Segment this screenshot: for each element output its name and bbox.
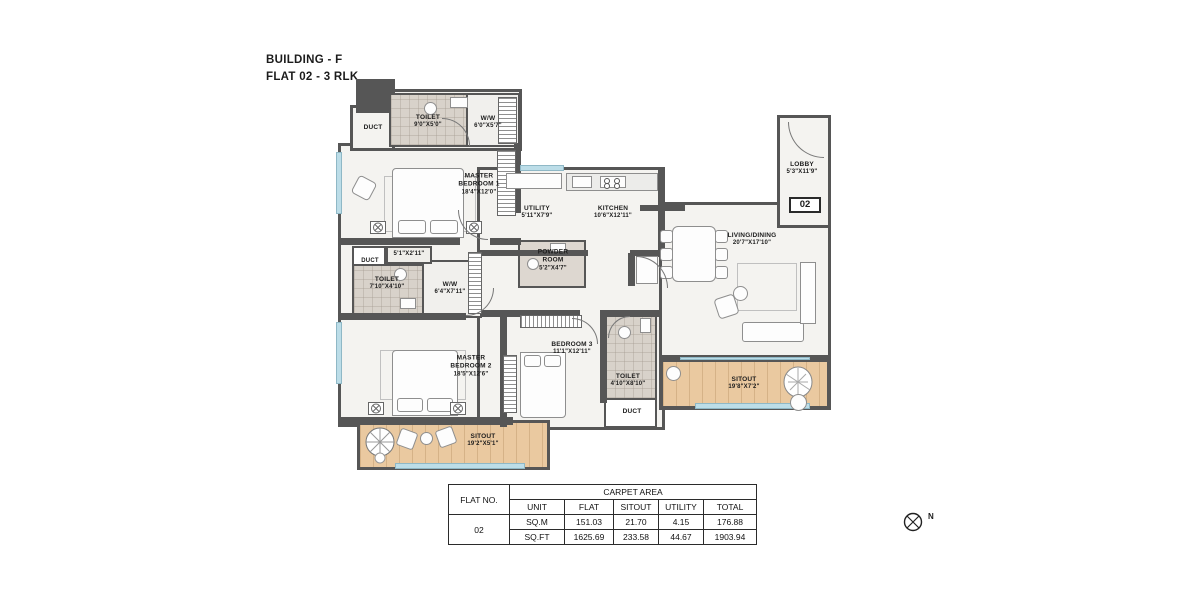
fan-icon xyxy=(368,402,384,415)
label-ww-1: W/W 6'0"X5'7" xyxy=(474,115,502,131)
dining-chair xyxy=(660,230,673,243)
wall-corridor-bed3-b xyxy=(600,310,662,317)
flat-no-value: 02 xyxy=(449,515,510,545)
sofa-living xyxy=(742,322,804,342)
dining-chair xyxy=(715,248,728,261)
tv-unit-living xyxy=(800,262,816,324)
cell-sitout-sqm: 21.70 xyxy=(614,515,659,530)
fan-icon xyxy=(450,402,466,415)
label-sitout-left: SITOUT 19'2"X5'1" xyxy=(467,433,498,449)
wall-master2-sitout xyxy=(338,417,513,425)
dining-chair xyxy=(660,248,673,261)
col-header-flat: FLAT xyxy=(565,500,614,515)
basin-toilet3 xyxy=(640,318,651,333)
compass: N xyxy=(902,510,942,536)
side-table-living xyxy=(733,286,748,301)
wall-master2-top xyxy=(338,313,466,320)
plan-title: BUILDING - F FLAT 02 - 3 RLK xyxy=(266,52,358,85)
cell-total-sqft: 1903.94 xyxy=(704,530,757,545)
cell-total-sqm: 176.88 xyxy=(704,515,757,530)
label-ww-2: W/W 6'4"X7'11" xyxy=(435,281,466,297)
wall-master1-bottom xyxy=(338,238,460,245)
compass-north-label: N xyxy=(928,512,934,521)
label-bedroom-3: BEDROOM 3 11'1"X12'11" xyxy=(551,341,592,357)
rug-living xyxy=(737,263,797,311)
cell-utility-sqft: 44.67 xyxy=(659,530,704,545)
pillow-bedroom3-a xyxy=(524,355,541,367)
window-sitout-left-rail xyxy=(395,463,525,469)
wall-bed3-toilet3 xyxy=(600,313,607,403)
col-header-utility: UTILITY xyxy=(659,500,704,515)
plan-title-line1: BUILDING - F xyxy=(266,52,358,69)
col-header-sitout: SITOUT xyxy=(614,500,659,515)
stove-burner xyxy=(614,183,620,189)
pillow-master1-a xyxy=(398,220,426,234)
wall-kitchen-right xyxy=(658,167,665,257)
label-duct-2: DUCT xyxy=(361,258,378,266)
dining-table xyxy=(672,226,716,282)
label-master-bedroom-1: MASTER BEDROOM 1 18'4"X12'0" xyxy=(447,173,511,198)
label-utility: UTILITY 5'11"X7'9" xyxy=(522,205,553,221)
wall-master1-bottom2 xyxy=(490,238,521,245)
col-header-unit: UNIT xyxy=(510,500,565,515)
basin-toilet2 xyxy=(400,298,416,309)
pillow-master1-b xyxy=(430,220,458,234)
dining-chair xyxy=(715,230,728,243)
kitchen-sink xyxy=(572,176,592,188)
wardrobe-hatch-bedroom3-left xyxy=(503,355,517,413)
wall-living-entry xyxy=(640,205,685,211)
spiral-stair-icon xyxy=(364,426,398,464)
label-duct-3: DUCT xyxy=(623,408,642,416)
label-lobby: LOBBY 5'3"X11'9" xyxy=(787,161,818,177)
carpet-area-table: FLAT NO. CARPET AREA UNIT FLAT SITOUT UT… xyxy=(448,484,757,545)
fan-icon xyxy=(370,221,386,234)
label-powder-room: POWDER ROOM 5'2"X4'7" xyxy=(532,249,574,274)
sitout-right-table xyxy=(666,366,681,381)
plan-title-line2: FLAT 02 - 3 RLK xyxy=(266,69,358,86)
window-kitchen-top xyxy=(520,165,564,171)
flat-no-header: FLAT NO. xyxy=(449,485,510,515)
cell-utility-sqm: 4.15 xyxy=(659,515,704,530)
floor-plan-page: BUILDING - F FLAT 02 - 3 RLK xyxy=(0,0,1200,600)
window-living-sitout-slider xyxy=(680,357,810,360)
utility-cabinet xyxy=(506,173,562,189)
label-duct-1: DUCT xyxy=(364,124,383,132)
flat-number-badge: 02 xyxy=(789,197,821,213)
pillow-master2-a xyxy=(397,398,423,412)
col-header-total: TOTAL xyxy=(704,500,757,515)
label-passage-dims: 5'1"X2'11" xyxy=(394,251,425,259)
window-master2-left xyxy=(336,322,342,384)
wall-powder-right xyxy=(628,253,635,286)
label-kitchen: KITCHEN 10'6"X12'11" xyxy=(594,205,632,221)
cell-sitout-sqft: 233.58 xyxy=(614,530,659,545)
label-toilet-3: TOILET 4'10"X8'10" xyxy=(608,373,648,389)
window-master1-left xyxy=(336,152,342,214)
cell-flat-sqft: 1625.69 xyxy=(565,530,614,545)
cell-flat-sqm: 151.03 xyxy=(565,515,614,530)
sitout-left-table xyxy=(420,432,433,445)
stove-burner xyxy=(604,183,610,189)
dining-chair xyxy=(715,266,728,279)
basin-toilet1 xyxy=(450,97,468,108)
cell-unit-sqft: SQ.FT xyxy=(510,530,565,545)
label-master-bedroom-2: MASTER BEDROOM 2 18'5"X12'6" xyxy=(439,355,503,380)
label-toilet-2: TOILET 7'10"X4'10" xyxy=(370,276,405,292)
label-sitout-right: SITOUT 19'8"X7'2" xyxy=(728,376,759,392)
sitout-right-stool xyxy=(790,394,807,411)
label-toilet-1: TOILET 9'0"X5'0" xyxy=(414,114,442,130)
label-living-dining: LIVING/DINING 20'7"X17'10" xyxy=(728,232,777,248)
carpet-area-header: CARPET AREA xyxy=(510,485,757,500)
table-row: 02 SQ.M 151.03 21.70 4.15 176.88 xyxy=(449,515,757,530)
north-compass-icon xyxy=(902,510,926,534)
cell-unit-sqm: SQ.M xyxy=(510,515,565,530)
